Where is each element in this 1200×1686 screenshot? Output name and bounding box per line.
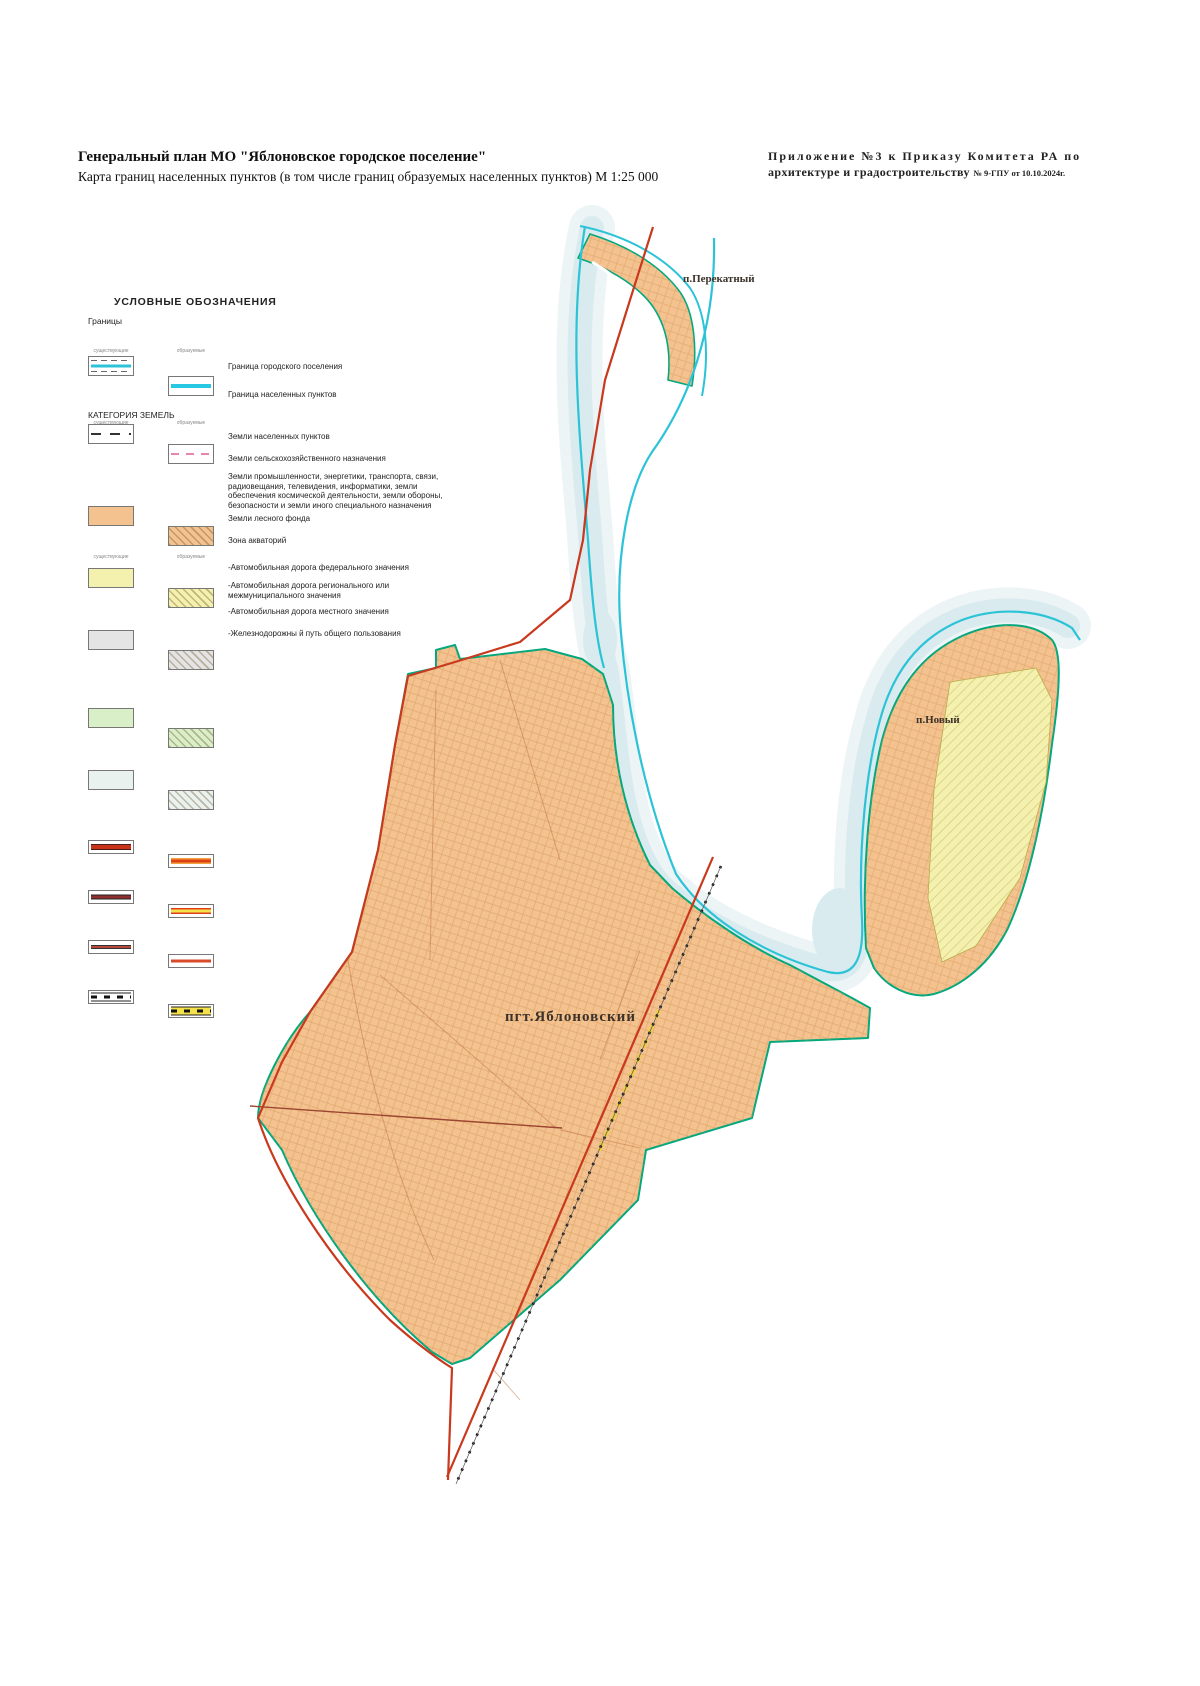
legend-label-cat-settlement: Земли населенных пунктов [228,432,458,442]
swatch-road-local-formed [168,954,214,968]
page: { "page": { "title": "Генеральный план М… [0,0,1200,1686]
swatch-settlement-border-formed [168,444,214,464]
swatch-town-border-existing [88,356,134,376]
swatch-settlement-border-existing [88,424,134,444]
legend-label-cat-agriculture: Земли сельскохозяйственного назначения [228,454,458,464]
swatch-cat-industry [88,630,134,650]
legend-colhead-existing: существующие [88,348,134,354]
swatch-cat-settlement-formed [168,526,214,546]
water-pocket [812,888,868,972]
swatch-cat-industry-formed [168,650,214,670]
label-perekatny: п.Перекатный [683,273,755,285]
pond [583,610,617,670]
swatch-road-federal-existing [88,840,134,854]
swatch-cat-water-formed [168,790,214,810]
swatch-road-federal-formed [168,854,214,868]
map-canvas: п.Перекатный п.Новый пгт.Яблоновский [0,0,1200,1686]
swatch-cat-agriculture-formed [168,588,214,608]
swatch-road-regional-existing [88,890,134,904]
legend-colhead-formed: образуемые [168,348,214,354]
legend-label-cat-industry: Земли промышленности, энергетики, трансп… [228,472,466,510]
legend-section-categories: КАТЕГОРИЯ ЗЕМЕЛЬ [88,410,175,420]
legend-label-town-border: Граница городского поселения [228,362,458,372]
swatch-cat-settlement [88,506,134,526]
legend-title: УСЛОВНЫЕ ОБОЗНАЧЕНИЯ [114,296,277,308]
swatch-railway-existing [88,990,134,1004]
swatch-cat-forest-formed [168,728,214,748]
settlement-yablonovsky-texture [258,645,870,1364]
label-yablonovsky: пгт.Яблоновский [505,1009,636,1025]
legend-colhead-formed-3: образуемые [168,554,214,560]
legend-label-railway: -Железнодорожны й путь общего пользовани… [228,629,458,639]
legend: УСЛОВНЫЕ ОБОЗНАЧЕНИЯ Границы существующи… [88,296,468,688]
swatch-road-local-existing [88,940,134,954]
legend-colhead-existing-3: существующие [88,554,134,560]
legend-label-settlement-border: Граница населенных пунктов [228,390,458,400]
map-sheet: Генеральный план МО "Яблоновское городск… [0,0,1200,1686]
legend-section-borders: Границы [88,316,122,326]
legend-label-road-local: -Автомобильная дорога местного значения [228,607,458,617]
legend-colhead-existing-2: существующие [88,420,134,426]
swatch-cat-agriculture [88,568,134,588]
legend-colhead-formed-2: образуемые [168,420,214,426]
label-novy: п.Новый [916,714,960,726]
legend-label-cat-forest: Земли лесного фонда [228,514,458,524]
legend-label-road-regional: -Автомобильная дорога регионального или … [228,581,458,600]
legend-label-cat-water: Зона акваторий [228,536,458,546]
agriculture-hatch [928,668,1052,962]
swatch-railway-formed [168,1004,214,1018]
legend-label-road-federal: -Автомобильная дорога федерального значе… [228,563,458,573]
swatch-cat-water [88,770,134,790]
swatch-road-regional-formed [168,904,214,918]
swatch-cat-forest [88,708,134,728]
swatch-town-border-formed [168,376,214,396]
